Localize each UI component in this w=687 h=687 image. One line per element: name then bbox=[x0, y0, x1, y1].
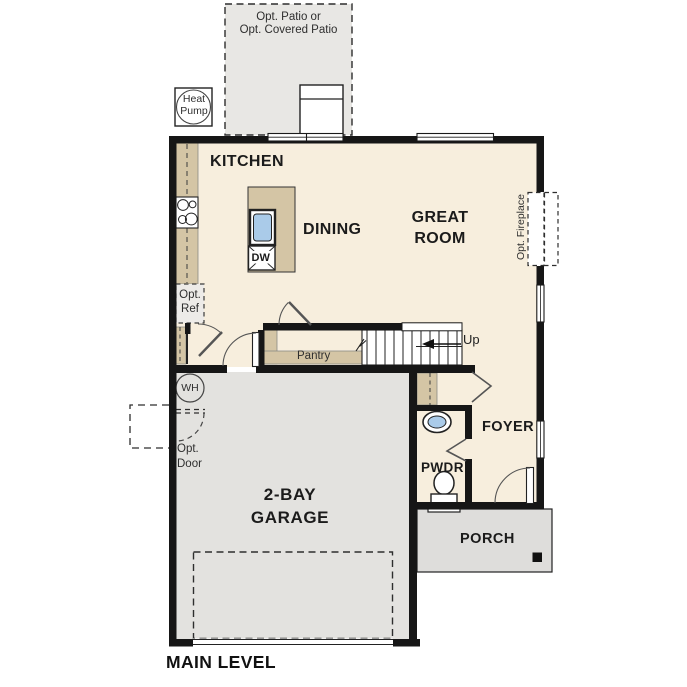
optional-ref-label: Opt. Ref bbox=[175, 288, 205, 316]
stove-icon bbox=[176, 197, 198, 228]
optional-door-label: Opt. Door bbox=[177, 442, 202, 471]
porch-post bbox=[533, 553, 543, 563]
dishwasher-label: DW bbox=[252, 252, 270, 265]
chimney bbox=[300, 85, 343, 137]
room-label-garage: 2-BAY GARAGE bbox=[245, 483, 335, 529]
floor-plan-drawing bbox=[0, 0, 687, 687]
plan-title: MAIN LEVEL bbox=[166, 652, 276, 672]
water-heater-label: WH bbox=[176, 382, 204, 394]
optional-patio-label: Opt. Patio or Opt. Covered Patio bbox=[222, 11, 355, 36]
sink-icon bbox=[250, 210, 275, 245]
room-label-dining: DINING bbox=[303, 221, 361, 239]
room-label-great-room: GREAT ROOM bbox=[398, 207, 482, 249]
room-label-porch: PORCH bbox=[460, 531, 515, 548]
powder-sink-icon bbox=[423, 412, 451, 433]
room-label-foyer: FOYER bbox=[482, 419, 534, 436]
stairs-up-label: Up bbox=[463, 333, 480, 348]
heat-pump-label: Heat Pump bbox=[175, 93, 213, 117]
room-label-pantry: Pantry bbox=[297, 350, 330, 363]
floor-plan: Opt. Patio or Opt. Covered Patio Heat Pu… bbox=[0, 0, 687, 687]
room-label-kitchen: KITCHEN bbox=[210, 153, 284, 171]
room-label-powder: PWDR bbox=[421, 460, 464, 476]
coat-closet bbox=[417, 373, 437, 405]
fireplace-optional-outline bbox=[528, 193, 558, 266]
optional-fireplace-label: Opt. Fireplace bbox=[515, 181, 527, 273]
stairs bbox=[356, 330, 462, 365]
garage-door-opening bbox=[193, 639, 393, 648]
